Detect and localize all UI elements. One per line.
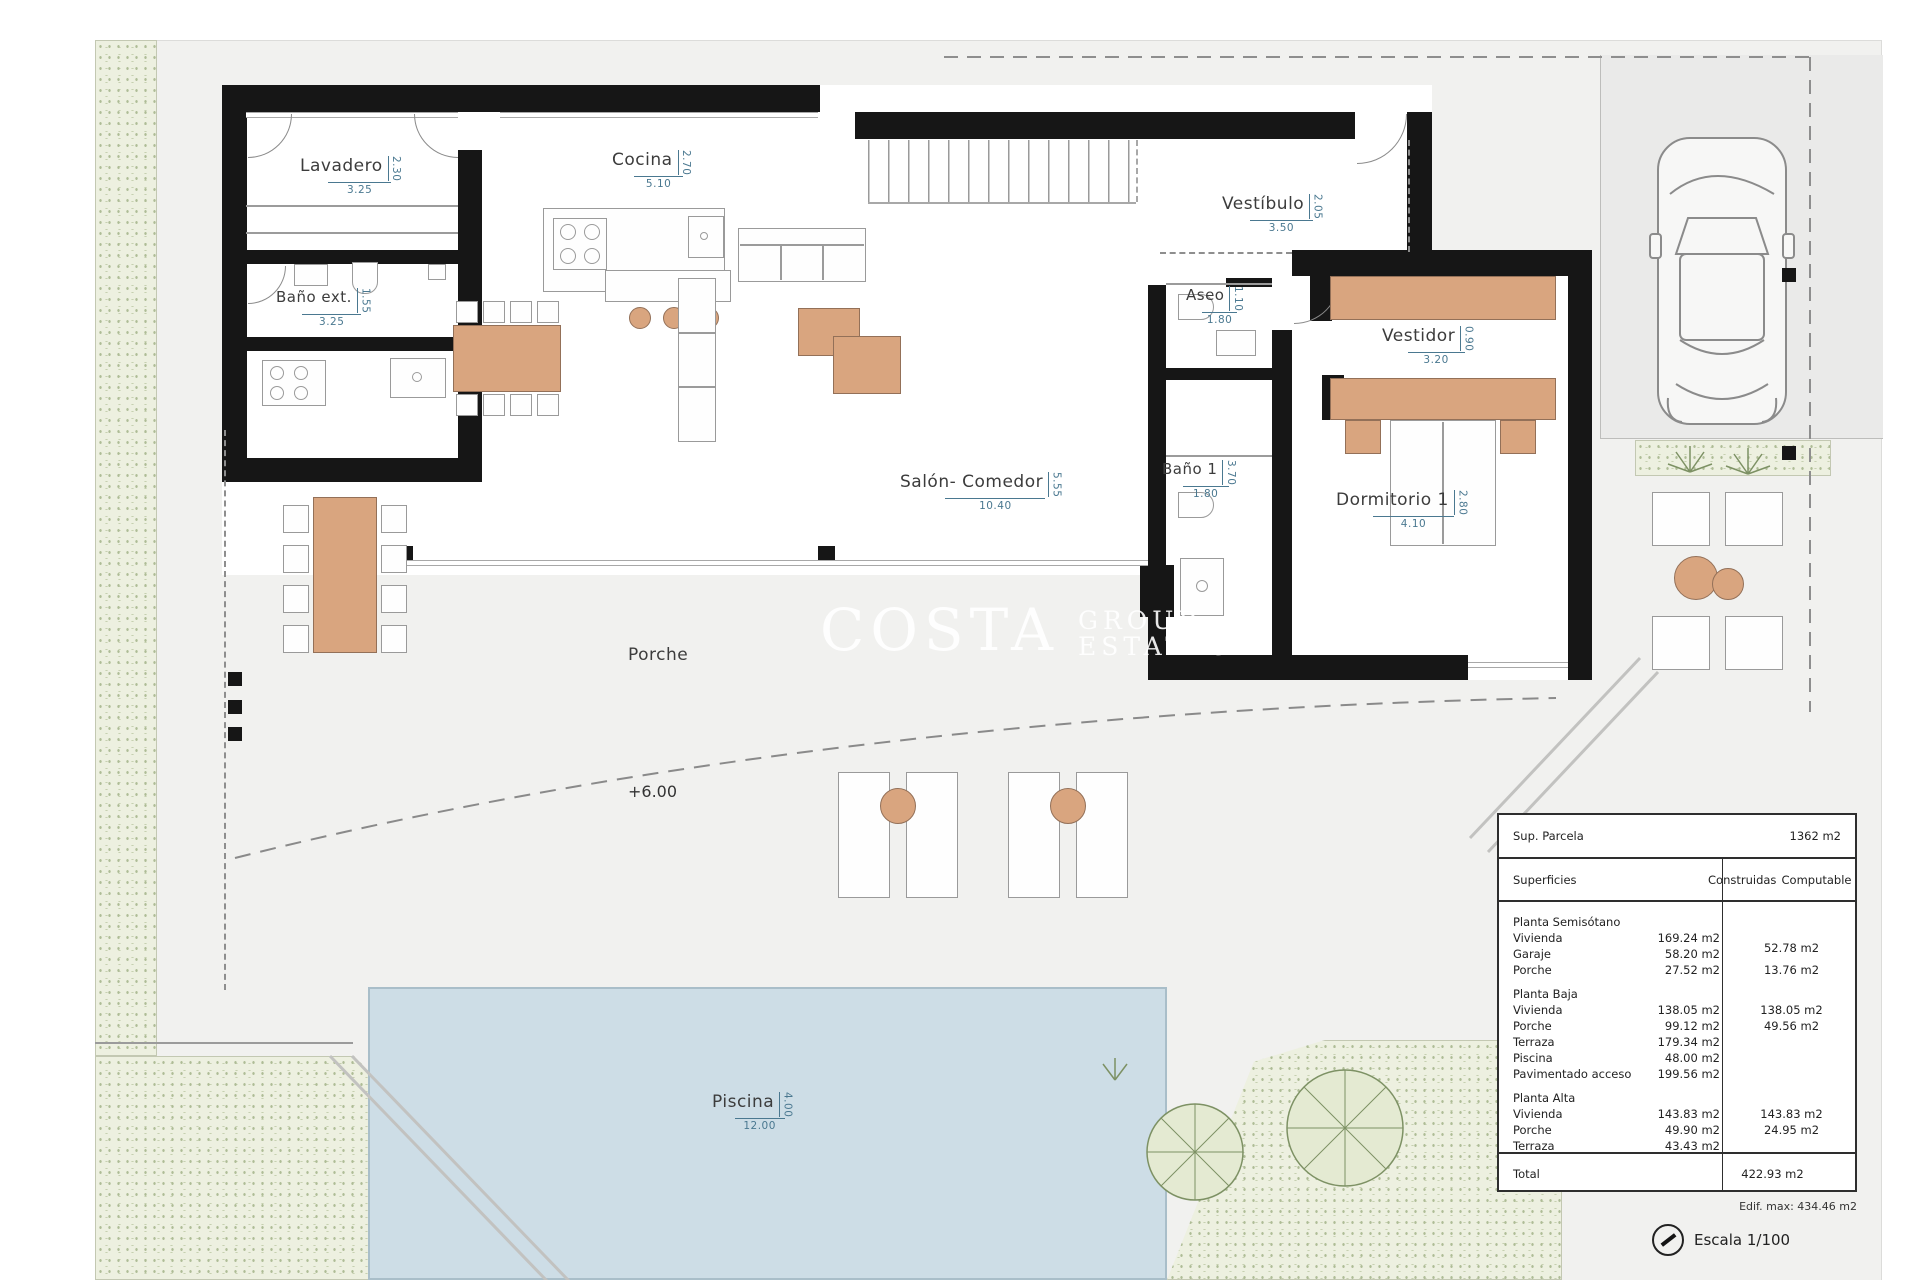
wall bbox=[222, 85, 820, 112]
porch-dashed-edge bbox=[224, 430, 226, 990]
table-header: Superficies Construidas Computable bbox=[1499, 859, 1855, 902]
porch-column bbox=[228, 672, 242, 686]
chair bbox=[283, 625, 309, 653]
chair bbox=[483, 301, 505, 323]
chair bbox=[456, 301, 478, 323]
armchair bbox=[1725, 492, 1783, 546]
room-label-porche: Porche bbox=[628, 645, 688, 665]
chair bbox=[537, 394, 559, 416]
sink bbox=[1216, 330, 1256, 356]
armchair bbox=[1725, 616, 1783, 670]
shower-divider bbox=[1166, 455, 1272, 457]
chair bbox=[510, 394, 532, 416]
table-total-row: Total 422.93 m2 bbox=[1499, 1152, 1855, 1194]
sun-lounger bbox=[838, 772, 890, 898]
bar-stool bbox=[629, 307, 651, 329]
sun-lounger bbox=[906, 772, 958, 898]
nightstand bbox=[1345, 420, 1381, 454]
table-row: Vivienda143.83 m2143.83 m2 bbox=[1499, 1106, 1855, 1122]
chair bbox=[381, 545, 407, 573]
room-label-vestidor: Vestidor 0.90 3.20 bbox=[1382, 326, 1474, 366]
chair bbox=[381, 585, 407, 613]
wall bbox=[1407, 112, 1432, 252]
room-label-piscina: Piscina 4.00 12.00 bbox=[712, 1092, 793, 1132]
chair bbox=[283, 505, 309, 533]
wall bbox=[222, 85, 247, 482]
sofa-line bbox=[740, 244, 864, 246]
table-parcel-row: Sup. Parcela 1362 m2 bbox=[1499, 815, 1855, 859]
level-marker: +6.00 bbox=[628, 782, 677, 801]
room-label-cocina: Cocina 2.70 5.10 bbox=[612, 150, 691, 190]
wardrobe bbox=[1330, 276, 1556, 320]
chair bbox=[483, 394, 505, 416]
shelf-line bbox=[679, 332, 715, 334]
chair bbox=[283, 585, 309, 613]
boundary-marker bbox=[1782, 446, 1796, 460]
areas-table: Sup. Parcela 1362 m2 Superficies Constru… bbox=[1497, 813, 1857, 1192]
wall bbox=[855, 112, 1355, 139]
side-table bbox=[880, 788, 916, 824]
sink-drain bbox=[700, 232, 708, 240]
burner bbox=[270, 386, 284, 400]
floor-plan-page: Lavadero 2.30 3.25 Baño ext. 1.55 3.25 C… bbox=[0, 0, 1920, 1280]
table-row: Vivienda169.24 m252.78 m2 bbox=[1499, 930, 1855, 946]
walkway-paths bbox=[330, 658, 1658, 1280]
wardrobe bbox=[1330, 378, 1556, 420]
watermark-logo: COSTA bbox=[820, 596, 1059, 664]
burner bbox=[270, 366, 284, 380]
wall bbox=[1166, 368, 1272, 380]
counter-line bbox=[246, 232, 458, 234]
sofa bbox=[738, 228, 866, 282]
chair bbox=[381, 625, 407, 653]
window bbox=[500, 112, 818, 118]
sink bbox=[294, 264, 328, 286]
wall bbox=[1272, 330, 1292, 655]
room-label-bano-ext: Baño ext. 1.55 3.25 bbox=[276, 288, 370, 328]
porch-column bbox=[228, 700, 242, 714]
porch-column bbox=[228, 727, 242, 741]
outdoor-dining-table bbox=[313, 497, 377, 653]
table-row: Terraza179.34 m2 bbox=[1499, 1034, 1855, 1050]
coffee-table bbox=[833, 336, 901, 394]
sun-lounger bbox=[1008, 772, 1060, 898]
terrain-dashed-curve bbox=[235, 698, 1556, 858]
table-section: Planta Semisótano bbox=[1499, 914, 1855, 930]
burner bbox=[560, 224, 576, 240]
armchair bbox=[1652, 492, 1710, 546]
dining-table bbox=[453, 325, 561, 392]
table-row: Piscina48.00 m2 bbox=[1499, 1050, 1855, 1066]
vestibule-dashed-edge bbox=[1408, 140, 1410, 252]
room-label-dormitorio1: Dormitorio 1 2.80 4.10 bbox=[1336, 490, 1467, 530]
table-body: Planta Semisótano Vivienda169.24 m252.78… bbox=[1499, 902, 1855, 1152]
staircase bbox=[868, 140, 1136, 204]
burner bbox=[294, 366, 308, 380]
table-section: Planta Alta bbox=[1499, 1090, 1855, 1106]
sink-drain bbox=[412, 372, 422, 382]
boundary-marker bbox=[1782, 268, 1796, 282]
chair bbox=[510, 301, 532, 323]
sofa-line bbox=[780, 246, 782, 280]
sink-drain bbox=[1196, 580, 1208, 592]
table-row: Porche99.12 m249.56 m2 bbox=[1499, 1018, 1855, 1034]
fixture bbox=[428, 264, 446, 280]
wall bbox=[1568, 250, 1592, 680]
room-label-aseo: Aseo 1.10 1.80 bbox=[1186, 286, 1243, 326]
sun-lounger bbox=[1076, 772, 1128, 898]
chair bbox=[537, 301, 559, 323]
round-table bbox=[1712, 568, 1744, 600]
nightstand bbox=[1500, 420, 1536, 454]
room-label-lavadero: Lavadero 2.30 3.25 bbox=[300, 156, 401, 196]
table-divider bbox=[1722, 859, 1723, 1190]
sofa-line bbox=[822, 246, 824, 280]
round-table bbox=[1674, 556, 1718, 600]
wall bbox=[1292, 250, 1592, 276]
table-section: Planta Baja bbox=[1499, 986, 1855, 1002]
room-label-bano1: Baño 1 3.70 1.80 bbox=[1162, 460, 1236, 500]
burner bbox=[584, 224, 600, 240]
shelving-unit bbox=[678, 278, 716, 442]
chair bbox=[381, 505, 407, 533]
window bbox=[1468, 662, 1568, 668]
vestibule-dashed-edge bbox=[1160, 252, 1292, 254]
tree-icons bbox=[1147, 1070, 1403, 1200]
car-icon bbox=[1650, 138, 1794, 424]
chair bbox=[283, 545, 309, 573]
table-row: Pavimentado acceso199.56 m2 bbox=[1499, 1066, 1855, 1082]
burner bbox=[294, 386, 308, 400]
room-label-salon-comedor: Salón- Comedor 5.55 10.40 bbox=[900, 472, 1062, 512]
scale-label: Escala 1/100 bbox=[1694, 1231, 1790, 1249]
sliding-door-track bbox=[1166, 283, 1272, 285]
chair bbox=[456, 394, 478, 416]
north-compass-icon bbox=[1652, 1224, 1684, 1256]
burner bbox=[560, 248, 576, 264]
scale-indicator: Escala 1/100 bbox=[1652, 1224, 1790, 1256]
table-row: Porche27.52 m213.76 m2 bbox=[1499, 962, 1855, 978]
counter-line bbox=[246, 205, 458, 207]
shelf-line bbox=[679, 386, 715, 388]
armchair bbox=[1652, 616, 1710, 670]
table-row: Vivienda138.05 m2138.05 m2 bbox=[1499, 1002, 1855, 1018]
watermark-logo-sub: GROUP ESTATES bbox=[1078, 608, 1232, 661]
side-table bbox=[1050, 788, 1086, 824]
room-label-vestibulo: Vestíbulo 2.05 3.50 bbox=[1222, 194, 1323, 234]
burner bbox=[584, 248, 600, 264]
table-row: Porche49.90 m224.95 m2 bbox=[1499, 1122, 1855, 1138]
glass-slider bbox=[390, 560, 1148, 566]
wall bbox=[246, 337, 458, 351]
wall bbox=[222, 458, 482, 482]
max-buildable-note: Edif. max: 434.46 m2 bbox=[1640, 1200, 1857, 1213]
stair-cut-line bbox=[1136, 140, 1138, 202]
